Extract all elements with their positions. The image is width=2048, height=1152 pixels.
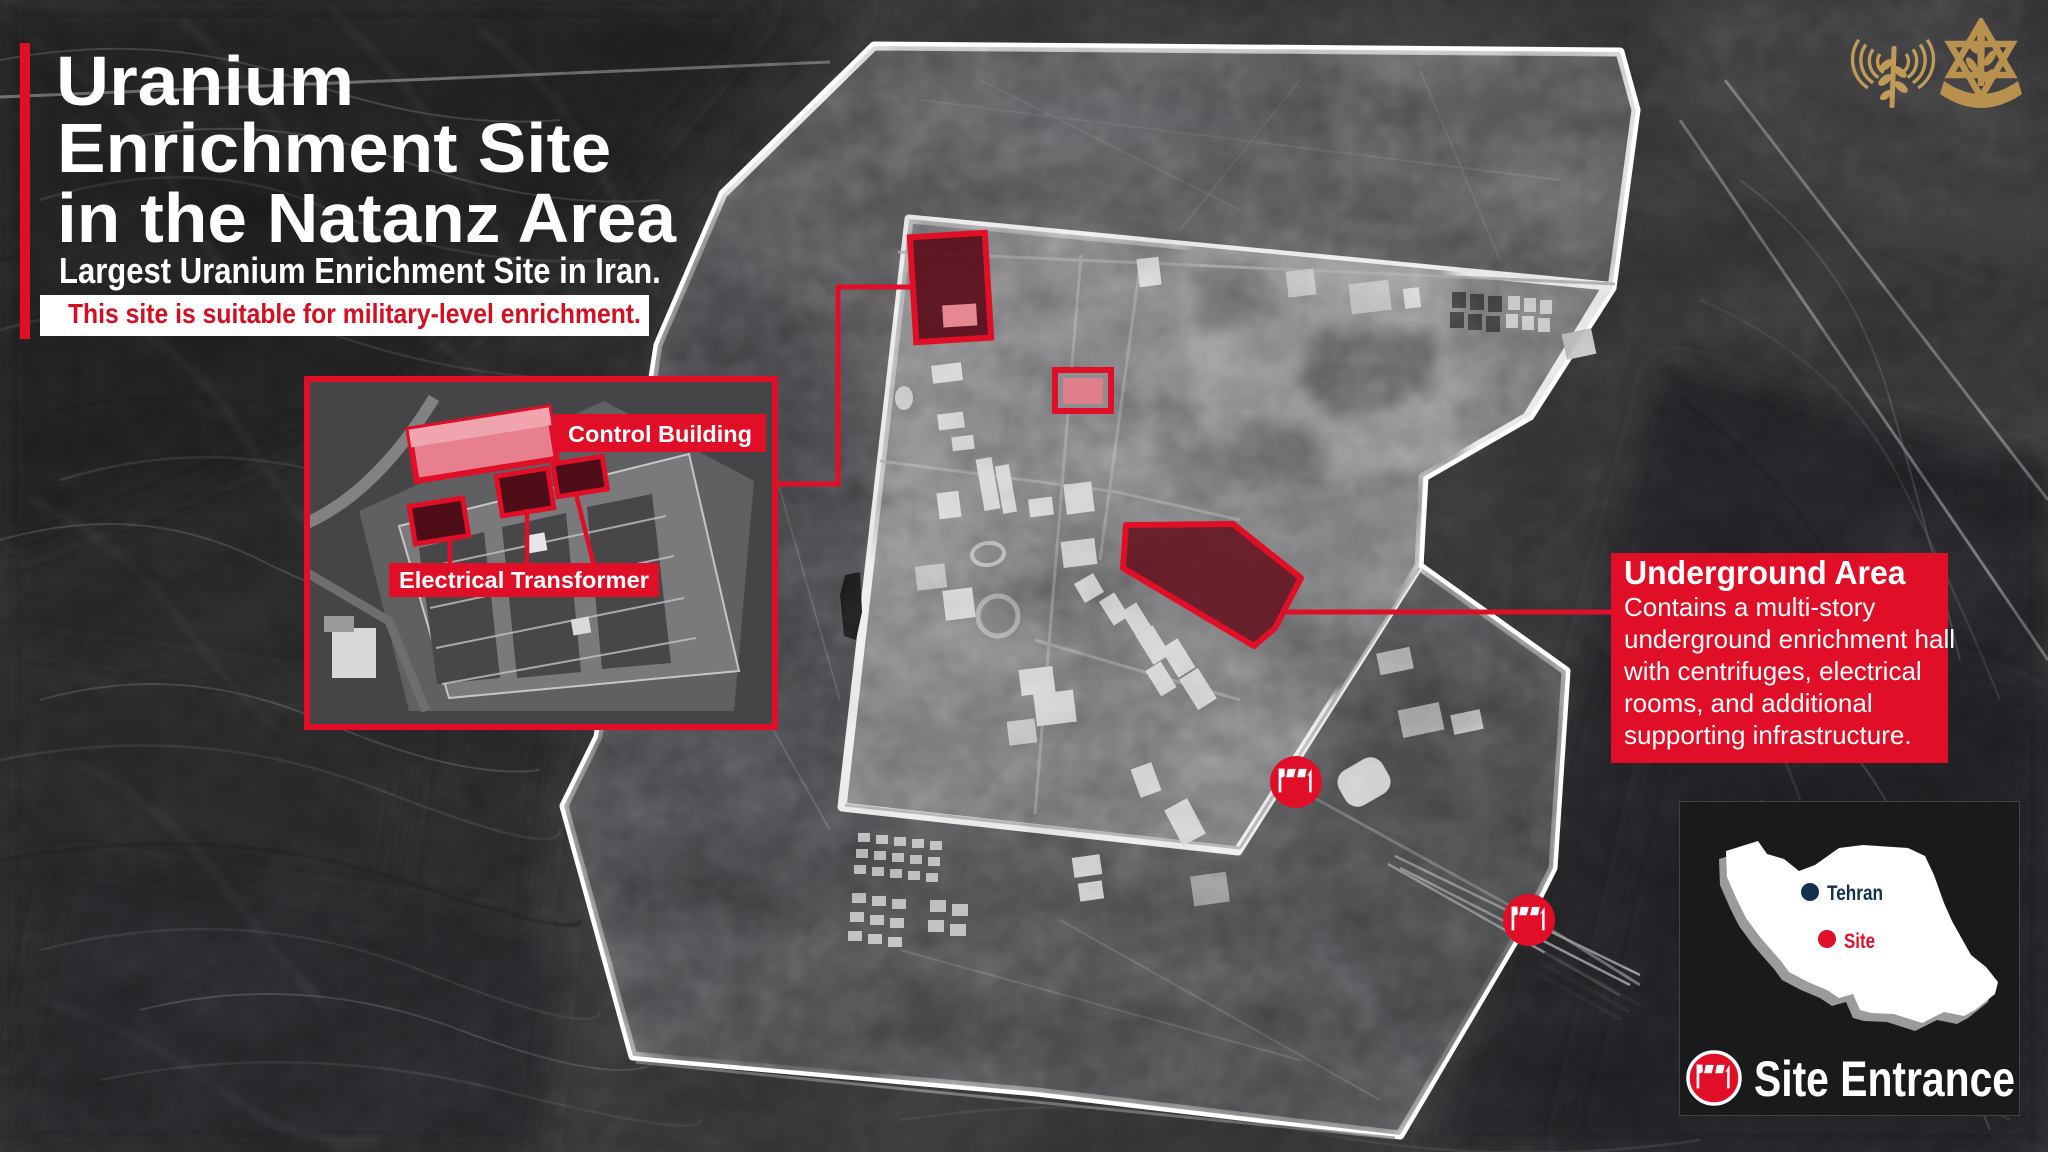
svg-text:Electrical Transformer: Electrical Transformer [399,567,649,593]
svg-text:Control Building: Control Building [568,421,752,447]
svg-text:Tehran: Tehran [1827,882,1883,905]
svg-text:Site: Site [1844,930,1875,953]
svg-text:Site Entrance: Site Entrance [1754,1051,2015,1107]
